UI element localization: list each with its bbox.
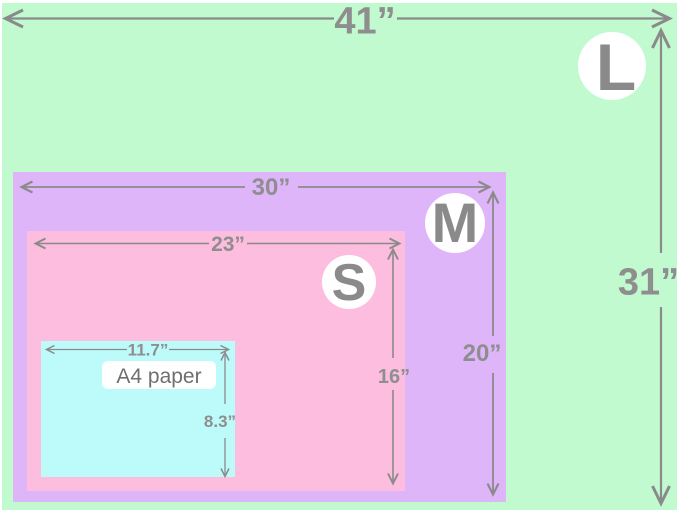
svg-text:30”: 30” xyxy=(252,174,291,201)
svg-text:S: S xyxy=(332,254,367,312)
svg-text:31”: 31” xyxy=(618,262,679,304)
svg-text:M: M xyxy=(432,191,479,254)
svg-text:41”: 41” xyxy=(334,1,395,43)
svg-text:16”: 16” xyxy=(378,366,410,388)
svg-text:20”: 20” xyxy=(463,340,502,367)
svg-text:A4 paper: A4 paper xyxy=(116,365,201,388)
svg-text:11.7”: 11.7” xyxy=(128,341,169,360)
svg-text:8.3”: 8.3” xyxy=(204,412,236,431)
svg-text:L: L xyxy=(596,30,636,104)
svg-text:23”: 23” xyxy=(211,233,245,256)
